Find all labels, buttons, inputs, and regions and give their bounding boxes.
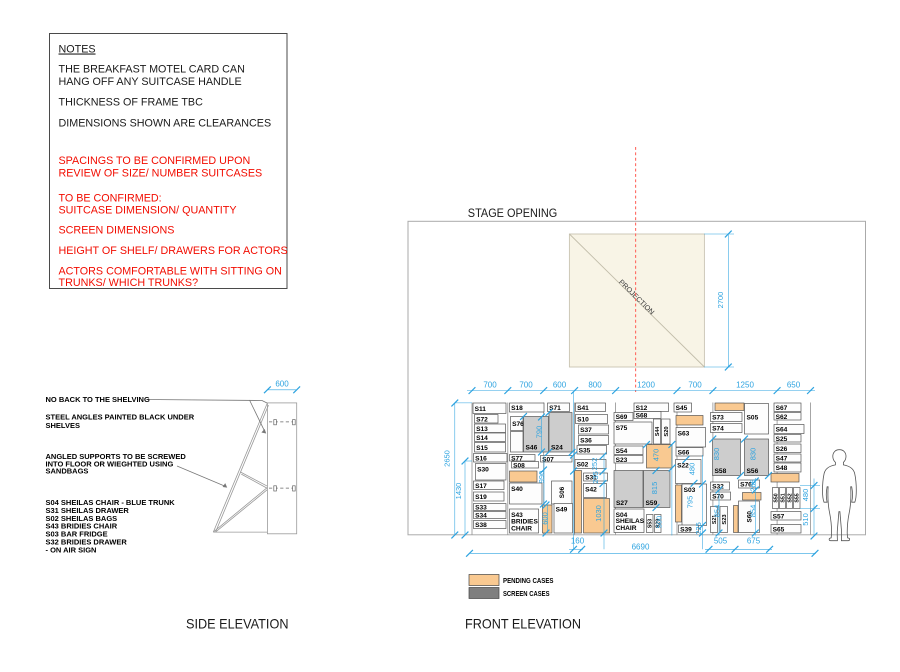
- svg-text:S34: S34: [475, 513, 487, 520]
- svg-text:S23: S23: [722, 514, 728, 525]
- svg-text:THE BREAKFAST MOTEL CARD CAN: THE BREAKFAST MOTEL CARD CAN: [59, 64, 245, 76]
- svg-text:SHELVES: SHELVES: [46, 421, 80, 430]
- svg-text:790: 790: [535, 426, 544, 439]
- svg-text:265: 265: [749, 479, 758, 492]
- svg-text:S30: S30: [477, 467, 489, 474]
- svg-text:1430: 1430: [454, 483, 463, 500]
- svg-text:854: 854: [749, 505, 758, 518]
- svg-text:S38: S38: [475, 522, 487, 529]
- svg-text:S18: S18: [511, 405, 523, 412]
- svg-text:S52: S52: [787, 493, 793, 502]
- svg-text:S17: S17: [475, 483, 487, 490]
- svg-text:500: 500: [655, 516, 664, 529]
- svg-text:S59: S59: [646, 500, 658, 507]
- svg-text:S55: S55: [795, 493, 801, 502]
- svg-text:815: 815: [650, 482, 659, 495]
- svg-text:700: 700: [483, 381, 497, 390]
- svg-text:S15: S15: [476, 445, 488, 452]
- svg-text:480: 480: [688, 463, 697, 476]
- svg-text:795: 795: [686, 496, 695, 509]
- svg-text:HANG OFF ANY SUITCASE HANDLE: HANG OFF ANY SUITCASE HANDLE: [59, 76, 242, 88]
- svg-text:S51: S51: [780, 493, 786, 502]
- svg-text:S25: S25: [776, 436, 788, 443]
- svg-text:S20: S20: [664, 426, 670, 436]
- svg-text:S23: S23: [616, 457, 628, 464]
- svg-text:S49: S49: [556, 507, 568, 514]
- svg-text:S45: S45: [676, 405, 688, 412]
- svg-text:S02: S02: [577, 462, 589, 469]
- svg-text:S08: S08: [513, 462, 525, 469]
- svg-text:S63: S63: [678, 431, 690, 438]
- svg-text:600: 600: [541, 512, 550, 525]
- svg-text:ACTORS COMFORTABLE WITH SITTIN: ACTORS COMFORTABLE WITH SITTING ON: [59, 266, 282, 278]
- svg-text:S39: S39: [680, 526, 692, 533]
- svg-text:S54: S54: [616, 448, 628, 455]
- svg-text:S26: S26: [776, 446, 788, 453]
- svg-text:S27: S27: [616, 500, 628, 507]
- svg-text:S41: S41: [577, 405, 589, 412]
- svg-text:SUITCASE DIMENSION/ QUANTITY: SUITCASE DIMENSION/ QUANTITY: [59, 205, 237, 217]
- svg-text:S74: S74: [712, 426, 724, 433]
- svg-text:SPACINGS TO BE CONFIRMED UPON: SPACINGS TO BE CONFIRMED UPON: [59, 155, 251, 167]
- svg-text:S56: S56: [747, 468, 759, 475]
- svg-text:S65: S65: [773, 526, 785, 533]
- svg-text:2650: 2650: [443, 450, 452, 467]
- svg-text:800: 800: [588, 381, 602, 390]
- svg-text:830: 830: [712, 448, 721, 461]
- svg-text:480: 480: [801, 489, 810, 502]
- svg-text:BRIDIES: BRIDIES: [511, 519, 538, 526]
- svg-text:700: 700: [688, 381, 702, 390]
- svg-text:S40: S40: [511, 486, 523, 493]
- svg-text:S47: S47: [776, 456, 788, 463]
- svg-text:990: 990: [537, 471, 546, 484]
- svg-text:HEIGHT OF SHELF/ DRAWERS FOR A: HEIGHT OF SHELF/ DRAWERS FOR ACTORS: [59, 245, 288, 257]
- svg-text:470: 470: [652, 449, 661, 462]
- svg-text:S75: S75: [616, 425, 628, 432]
- svg-text:S57: S57: [773, 513, 785, 520]
- svg-text:6690: 6690: [632, 543, 650, 552]
- svg-text:S70: S70: [712, 494, 724, 501]
- svg-text:830: 830: [749, 448, 758, 461]
- svg-text:S73: S73: [712, 415, 724, 422]
- svg-text:NOTES: NOTES: [59, 44, 96, 56]
- svg-text:S19: S19: [475, 494, 487, 501]
- svg-text:S14: S14: [476, 435, 488, 442]
- svg-text:600: 600: [553, 381, 567, 390]
- svg-text:CHAIR: CHAIR: [511, 526, 532, 533]
- svg-text:510: 510: [801, 513, 810, 526]
- svg-text:S64: S64: [776, 427, 788, 434]
- svg-text:STAGE OPENING: STAGE OPENING: [468, 206, 558, 220]
- svg-text:NO BACK TO THE SHELVING: NO BACK TO THE SHELVING: [46, 395, 150, 404]
- svg-text:2700: 2700: [716, 292, 725, 309]
- svg-text:700: 700: [519, 381, 533, 390]
- svg-text:TRUNKS/ WHICH TRUNKS?: TRUNKS/ WHICH TRUNKS?: [59, 277, 199, 289]
- svg-text:1030: 1030: [594, 505, 603, 522]
- svg-text:S13: S13: [476, 426, 488, 433]
- svg-text:675: 675: [747, 537, 761, 546]
- svg-text:S11: S11: [475, 406, 487, 413]
- svg-text:S67: S67: [776, 405, 788, 412]
- svg-text:S35: S35: [579, 447, 591, 454]
- svg-text:S06: S06: [559, 486, 566, 498]
- svg-text:S12: S12: [636, 405, 648, 412]
- svg-text:SANDBAGS: SANDBAGS: [46, 467, 89, 476]
- svg-text:S36: S36: [580, 438, 592, 445]
- svg-text:S24: S24: [551, 445, 563, 452]
- svg-text:1250: 1250: [736, 381, 754, 390]
- svg-text:1200: 1200: [637, 381, 655, 390]
- svg-text:PENDING CASES: PENDING CASES: [503, 576, 554, 585]
- svg-text:235: 235: [591, 471, 600, 484]
- svg-text:S44: S44: [655, 427, 661, 436]
- svg-text:S53: S53: [648, 519, 654, 528]
- svg-text:S10: S10: [577, 417, 589, 424]
- svg-text:S72: S72: [476, 416, 488, 423]
- svg-text:S05: S05: [747, 415, 759, 422]
- svg-text:505: 505: [714, 537, 728, 546]
- svg-text:DIMENSIONS SHOWN ARE CLEARANCE: DIMENSIONS SHOWN ARE CLEARANCES: [59, 118, 272, 130]
- svg-text:600: 600: [275, 380, 289, 389]
- svg-text:SCREEN CASES: SCREEN CASES: [503, 589, 550, 598]
- svg-text:TO BE CONFIRMED:: TO BE CONFIRMED:: [59, 193, 162, 205]
- svg-text:SIDE ELEVATION: SIDE ELEVATION: [186, 615, 289, 631]
- svg-text:- ON AIR SIGN: - ON AIR SIGN: [46, 545, 97, 554]
- svg-text:SCREEN DIMENSIONS: SCREEN DIMENSIONS: [59, 225, 175, 237]
- svg-text:S66: S66: [678, 449, 690, 456]
- svg-text:160: 160: [571, 537, 585, 546]
- svg-text:S68: S68: [636, 413, 648, 420]
- svg-text:650: 650: [787, 381, 801, 390]
- svg-text:REVIEW OF SIZE/ NUMBER SUITCAS: REVIEW OF SIZE/ NUMBER SUITCASES: [59, 168, 263, 180]
- svg-text:225: 225: [694, 522, 703, 535]
- svg-text:SHEILAS: SHEILAS: [616, 518, 645, 525]
- svg-text:S48: S48: [776, 465, 788, 472]
- svg-text:S46: S46: [526, 445, 538, 452]
- svg-text:S69: S69: [616, 414, 628, 421]
- svg-text:S42: S42: [585, 487, 597, 494]
- svg-text:854: 854: [713, 505, 722, 518]
- svg-text:S03: S03: [684, 487, 696, 494]
- svg-text:CHAIR: CHAIR: [616, 525, 637, 532]
- svg-text:S58: S58: [715, 468, 727, 475]
- svg-text:S62: S62: [776, 414, 788, 421]
- svg-text:FRONT ELEVATION: FRONT ELEVATION: [465, 615, 581, 631]
- svg-text:S76: S76: [512, 421, 524, 428]
- svg-text:S37: S37: [580, 427, 592, 434]
- svg-text:252: 252: [590, 458, 599, 471]
- svg-text:S50: S50: [773, 493, 779, 502]
- svg-text:THICKNESS OF FRAME TBC: THICKNESS OF FRAME TBC: [59, 97, 204, 109]
- svg-text:S16: S16: [475, 455, 487, 462]
- svg-text:S33: S33: [475, 505, 487, 512]
